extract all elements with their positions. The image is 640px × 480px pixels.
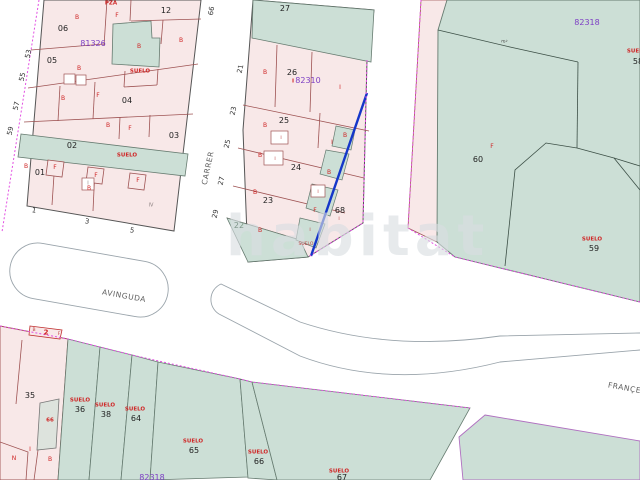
block-82310 bbox=[227, 0, 374, 262]
parcel-65[interactable] bbox=[150, 362, 248, 480]
block-bottom bbox=[0, 326, 640, 480]
avenue-corridor bbox=[211, 284, 640, 375]
block-82318 bbox=[408, 0, 640, 302]
parcel-60[interactable] bbox=[437, 0, 640, 302]
avinguda-island[interactable] bbox=[5, 239, 172, 322]
cadastral-map-view: habitat PZA061281326BFBB05SUELOB04BF03BF… bbox=[0, 0, 640, 480]
parcel-corner-green[interactable] bbox=[459, 415, 640, 480]
parcel-66-grey[interactable] bbox=[37, 399, 59, 450]
map-canvas[interactable] bbox=[0, 0, 640, 480]
block-81326 bbox=[18, 0, 201, 231]
parcel-67[interactable] bbox=[252, 382, 470, 480]
